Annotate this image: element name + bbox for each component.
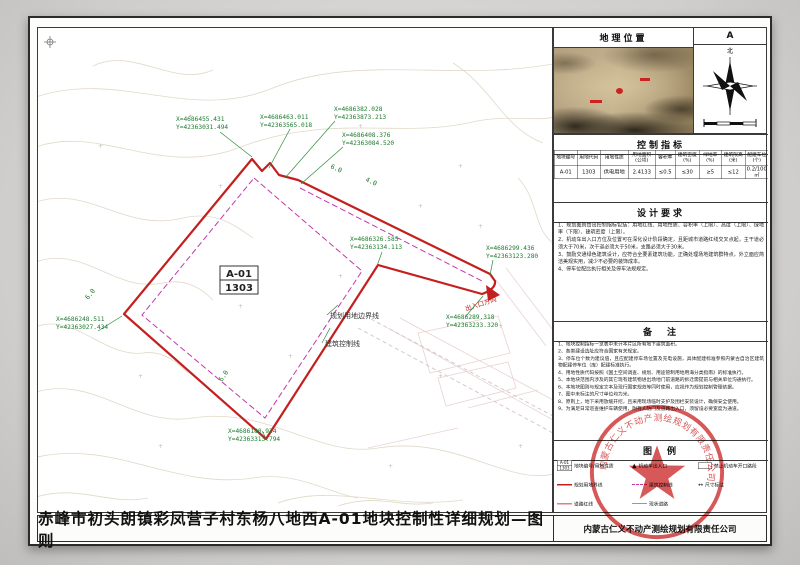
col-header: 用地面积(公顷) bbox=[628, 150, 655, 165]
legend-item: 禁止机动车开口路段 bbox=[698, 462, 768, 469]
parcel-box-symbol: A-01 1303 bbox=[557, 460, 572, 471]
location-row: 地理位置 A 北 bbox=[554, 28, 766, 134]
note-item: 2、各类建设选址应符合国家有关规定。 bbox=[558, 348, 764, 355]
cell-parcel-no: A-01 bbox=[554, 165, 577, 179]
site-plan-drawing: +++ +++ +++ +++ +++ + bbox=[37, 27, 553, 513]
coord-x: X=4686180.934 bbox=[228, 428, 277, 435]
indicator-row: A-01 1303 供电用地 2.4133 ≤0.5 ≤30 ≥5 ≤12 0.… bbox=[554, 165, 768, 179]
svg-text:6.0: 6.0 bbox=[83, 287, 97, 301]
legend-label: 规划用地界线 bbox=[574, 481, 603, 488]
site-plan-svg: +++ +++ +++ +++ +++ + bbox=[38, 28, 553, 513]
coord-y: Y=42363084.520 bbox=[342, 140, 394, 147]
svg-text:+: + bbox=[288, 353, 293, 360]
legend-item: A-01 1303 地块编号/用地性质 bbox=[557, 460, 632, 471]
red-line-symbol bbox=[557, 484, 572, 486]
coord-x: X=4686408.376 bbox=[342, 132, 391, 139]
sheet-number: A bbox=[694, 28, 766, 45]
coord-x: X=4686326.585 bbox=[350, 236, 399, 243]
col-header: 绿地率(%) bbox=[699, 150, 721, 165]
note-item: 3、停车位个数为建议值，且应配建停车场位置及充电设施，具体配建标准参照内蒙古自治… bbox=[558, 355, 764, 368]
sheet-frame: +++ +++ +++ +++ +++ + bbox=[28, 16, 772, 546]
design-item: 1、规划图则给出控制指标包括：用地红线、用地性质、容积率（上限）、高度（上限）、… bbox=[558, 222, 764, 236]
svg-text:+: + bbox=[478, 223, 483, 230]
cadastral-lines bbox=[368, 268, 553, 448]
location-cell: 地理位置 bbox=[554, 28, 694, 133]
control-line-symbol bbox=[632, 484, 647, 485]
company-name: 内蒙古仁义不动产测绘规划有限责任公司 bbox=[554, 516, 766, 541]
sheet-title: 赤峰市初头朗镇彩凤营子村东杨八地西A-01地块控制性详细规划—图则 bbox=[38, 516, 554, 541]
legend-item: 建筑控制线 bbox=[632, 481, 698, 488]
parcel-code: A-01 bbox=[226, 269, 252, 280]
legend-body: A-01 1303 地块编号/用地性质 规划用地界线 道路红线 bbox=[554, 453, 768, 514]
design-body: 1、规划图则给出控制指标包括：用地红线、用地性质、容积率（上限）、高度（上限）、… bbox=[554, 219, 768, 321]
legend-label: 尺寸标注 bbox=[705, 481, 724, 488]
north-cell: A 北 bbox=[694, 28, 766, 133]
coord-y: Y=42363123.280 bbox=[486, 253, 538, 260]
svg-text:+: + bbox=[518, 443, 523, 450]
coord-y: Y=42363873.213 bbox=[334, 114, 386, 121]
notes-body: 1、地块控制指标一览表中未计本片区所有地下建筑面积。 2、各类建设选址应符合国家… bbox=[554, 338, 768, 440]
indicators-table: 地块编号 用地代码 用地性质 用地面积(公顷) 容积率 建筑密度(%) 绿地率(… bbox=[554, 150, 768, 202]
entrance-label: 出入口方向 bbox=[464, 294, 498, 313]
compass-rose-icon bbox=[695, 55, 765, 117]
location-title: 地理位置 bbox=[554, 28, 693, 48]
control-line-label: 建筑控制线 bbox=[325, 339, 360, 348]
note-item: 5、本地块范围内涉及的其它现有建筑物进出场地门前道路的拆迁需提前与相关单位沟通执… bbox=[558, 377, 764, 384]
svg-text:6.0: 6.0 bbox=[217, 369, 230, 383]
no-opening-symbol bbox=[698, 462, 712, 469]
note-item: 7、图中未标注的尺寸单位均为米。 bbox=[558, 391, 764, 398]
annotation-mark bbox=[590, 100, 602, 103]
col-header: 地块编号 bbox=[554, 150, 577, 165]
scanned-plan-sheet: +++ +++ +++ +++ +++ + bbox=[0, 0, 800, 565]
legend-label: 地块编号/用地性质 bbox=[574, 462, 614, 469]
coord-y: Y=42363313.794 bbox=[228, 436, 280, 443]
coord-y: Y=42363031.494 bbox=[176, 124, 228, 131]
svg-text:+: + bbox=[238, 303, 243, 310]
legend-item: 规划用地界线 bbox=[557, 481, 632, 488]
cell-use-type: 供电用地 bbox=[600, 165, 628, 179]
cell-use-code: 1303 bbox=[577, 165, 600, 179]
svg-text:+: + bbox=[218, 183, 223, 190]
svg-text:+: + bbox=[388, 463, 393, 470]
col-header: 配建车位(个) bbox=[745, 150, 768, 165]
boundary-line-label: 规划用地边界线 bbox=[330, 311, 379, 320]
note-item: 8、原则上，地下采用放缓开挖，且采用现场临时支护及围栏安装设计，确保安全使用。 bbox=[558, 398, 764, 405]
legend-item: 现状道路 bbox=[632, 500, 698, 507]
satellite-image bbox=[554, 48, 693, 133]
note-item: 1、地块控制指标一览表中未计本片区所有地下建筑面积。 bbox=[558, 341, 764, 348]
note-item: 6、本地块图则与规定文本及现行国家规范等同时使用，应视作为规划控制管理依据。 bbox=[558, 384, 764, 391]
svg-text:+: + bbox=[498, 323, 503, 330]
cell-area: 2.4133 bbox=[628, 165, 655, 179]
svg-text:+: + bbox=[338, 273, 343, 280]
svg-text:+: + bbox=[158, 443, 163, 450]
coord-x: X=4686382.028 bbox=[334, 106, 383, 113]
parcel-code-box: A-01 1303 bbox=[220, 266, 258, 294]
coord-x: X=4686463.011 bbox=[260, 114, 309, 121]
coord-x: X=4686299.436 bbox=[486, 245, 535, 252]
legend-item: 道路红线 bbox=[557, 500, 632, 507]
cell-far: ≤0.5 bbox=[655, 165, 675, 179]
svg-text:+: + bbox=[438, 373, 443, 380]
cell-parking: 0.2/100㎡ bbox=[745, 165, 768, 179]
parcel-boundary-line bbox=[124, 159, 495, 439]
legend-label: 禁止机动车开口路段 bbox=[714, 462, 757, 469]
dimension-symbol: ↔ bbox=[698, 482, 703, 488]
coord-y: Y=42363027.434 bbox=[56, 324, 108, 331]
legend-label: 机动车出入口 bbox=[639, 462, 668, 469]
svg-text:6.0: 6.0 bbox=[329, 163, 343, 175]
svg-text:4.0: 4.0 bbox=[364, 176, 378, 188]
cell-green: ≥5 bbox=[699, 165, 721, 179]
svg-text:+: + bbox=[138, 373, 143, 380]
entrance-triangle-symbol: ▲ bbox=[632, 463, 637, 469]
coord-y: Y=42363565.018 bbox=[260, 122, 312, 129]
svg-text:+: + bbox=[458, 163, 463, 170]
col-header: 建筑密度(%) bbox=[675, 150, 699, 165]
road-redline-symbol bbox=[557, 503, 572, 505]
coord-x: X=4686455.431 bbox=[176, 116, 225, 123]
col-header: 用地代码 bbox=[577, 150, 600, 165]
coord-y: Y=42363134.113 bbox=[350, 244, 402, 251]
cell-height: ≤12 bbox=[721, 165, 745, 179]
parcel-use-code: 1303 bbox=[225, 283, 253, 294]
info-sidebar: 地理位置 A 北 bbox=[553, 27, 767, 513]
coord-x: X=4686289.318 bbox=[446, 314, 495, 321]
title-bar: 赤峰市初头朗镇彩凤营子村东杨八地西A-01地块控制性详细规划—图则 内蒙古仁义不… bbox=[37, 515, 767, 542]
col-header: 用地性质 bbox=[600, 150, 628, 165]
coord-y: Y=42363233.320 bbox=[446, 322, 498, 329]
existing-road-lines bbox=[358, 319, 553, 433]
cell-density: ≤30 bbox=[675, 165, 699, 179]
note-item: 4、用地性质代码按照《国土空间调查、规划、用途管制用地用海分类指南》的标准执行。 bbox=[558, 369, 764, 376]
scale-bar bbox=[700, 117, 760, 129]
existing-road-symbol bbox=[632, 503, 647, 504]
svg-text:+: + bbox=[358, 123, 363, 130]
svg-text:+: + bbox=[418, 203, 423, 210]
legend-label: 建筑控制线 bbox=[649, 481, 673, 488]
legend-item: ▲ 机动车出入口 bbox=[632, 462, 698, 469]
legend-label: 现状道路 bbox=[649, 500, 668, 507]
legend-label: 道路红线 bbox=[574, 500, 593, 507]
site-marker bbox=[616, 88, 623, 94]
legend-item: ↔ 尺寸标注 bbox=[698, 481, 768, 488]
design-item: 2、机动车出入口方位及位置可在深化设计阶段确定，且距城市道路红线交叉点起，主干道… bbox=[558, 237, 764, 251]
north-label: 北 bbox=[727, 46, 733, 55]
col-header: 建筑限高(米) bbox=[721, 150, 745, 165]
design-item: 3、鼓励交通绿色建筑设计，应符合全要素建筑功能，正确处理场地建筑群特点，外立面应… bbox=[558, 251, 764, 265]
design-item: 4、停车位配比执行相关及停车法规规定。 bbox=[558, 266, 764, 273]
annotation-mark bbox=[640, 78, 650, 81]
col-header: 容积率 bbox=[655, 150, 675, 165]
line-annotations: 规划用地边界线 建筑控制线 bbox=[322, 305, 379, 348]
svg-text:+: + bbox=[98, 143, 103, 150]
coord-x: X=4686248.511 bbox=[56, 316, 105, 323]
corner-survey-mark bbox=[44, 36, 56, 48]
building-control-line bbox=[142, 178, 484, 418]
note-item: 9、为满足日常巡查维护车辆使用，附有人防门及道路出入口，须留设必要宽度为通道。 bbox=[558, 406, 764, 413]
